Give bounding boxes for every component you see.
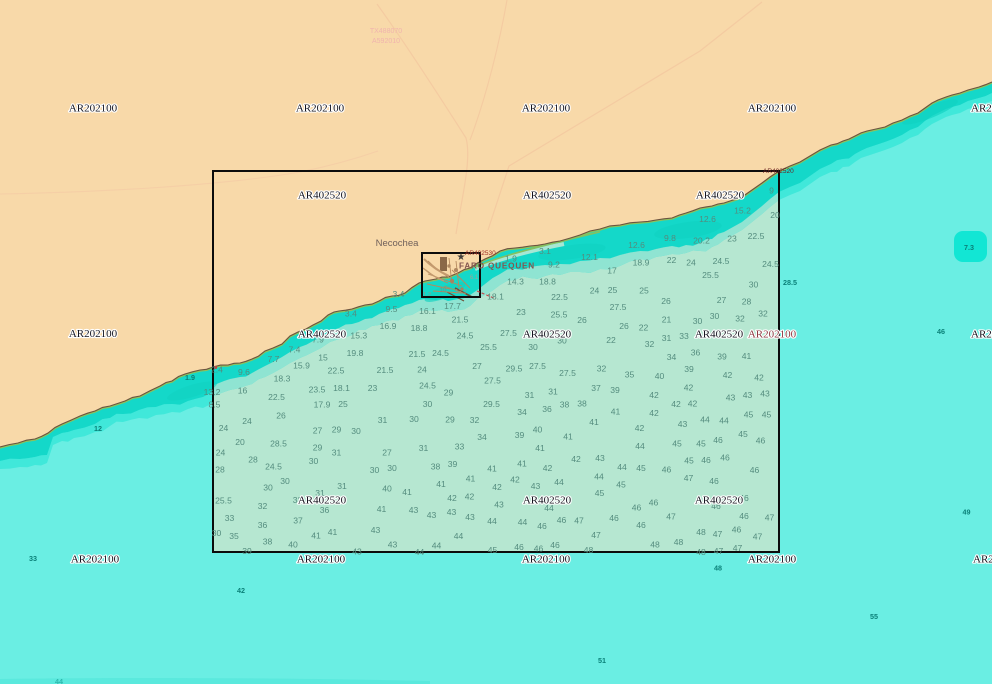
svg-text:42: 42 (684, 383, 694, 393)
svg-text:46: 46 (756, 436, 766, 446)
svg-text:35: 35 (625, 370, 635, 380)
svg-text:AR202100: AR202100 (522, 103, 571, 115)
svg-text:AR202100: AR202100 (522, 554, 571, 566)
svg-text:22.5: 22.5 (328, 366, 345, 376)
svg-text:24: 24 (242, 416, 252, 426)
svg-text:18.8: 18.8 (539, 277, 556, 287)
svg-text:44: 44 (635, 441, 645, 451)
svg-text:41: 41 (466, 474, 476, 484)
svg-text:48: 48 (584, 545, 594, 555)
svg-text:6.1: 6.1 (470, 275, 479, 281)
svg-text:38: 38 (560, 400, 570, 410)
svg-text:22: 22 (639, 323, 649, 333)
svg-text:AR402520: AR402520 (695, 495, 744, 507)
svg-text:18.1: 18.1 (487, 292, 504, 302)
svg-text:32: 32 (735, 314, 745, 324)
svg-text:41: 41 (377, 504, 387, 514)
svg-text:14.3: 14.3 (507, 277, 524, 287)
svg-text:30: 30 (351, 426, 361, 436)
svg-text:30: 30 (693, 316, 703, 326)
svg-text:17.7: 17.7 (444, 301, 461, 311)
svg-text:46: 46 (732, 525, 742, 535)
svg-text:AR202100: AR202100 (297, 554, 346, 566)
svg-text:9.8: 9.8 (664, 233, 676, 243)
svg-text:7.4: 7.4 (289, 345, 301, 355)
svg-text:37: 37 (293, 516, 303, 526)
svg-text:28.5: 28.5 (783, 278, 797, 287)
svg-text:30: 30 (423, 399, 433, 409)
svg-text:44: 44 (415, 547, 425, 557)
svg-text:25.5: 25.5 (551, 310, 568, 320)
svg-text:31: 31 (337, 481, 347, 491)
svg-text:20: 20 (235, 437, 245, 447)
svg-text:24: 24 (417, 365, 427, 375)
svg-text:30: 30 (280, 476, 290, 486)
svg-text:24.5: 24.5 (457, 331, 474, 341)
svg-text:45: 45 (744, 410, 754, 420)
svg-text:47: 47 (574, 516, 584, 526)
svg-text:8.5: 8.5 (209, 400, 221, 410)
svg-text:12.1: 12.1 (581, 252, 598, 262)
svg-text:47: 47 (753, 532, 763, 542)
svg-text:43: 43 (494, 500, 504, 510)
svg-text:42: 42 (649, 408, 659, 418)
svg-text:47: 47 (765, 513, 775, 523)
svg-text:30: 30 (212, 528, 222, 538)
svg-text:26: 26 (577, 315, 587, 325)
svg-text:47: 47 (733, 543, 743, 553)
svg-text:46: 46 (537, 521, 547, 531)
svg-text:25.5: 25.5 (215, 496, 232, 506)
svg-text:36: 36 (691, 348, 701, 358)
svg-text:12: 12 (94, 424, 102, 433)
svg-text:A592010: A592010 (372, 38, 400, 45)
svg-text:21: 21 (662, 315, 672, 325)
svg-text:43: 43 (388, 540, 398, 550)
svg-text:15.9: 15.9 (293, 361, 310, 371)
svg-text:46: 46 (713, 435, 723, 445)
svg-text:43: 43 (726, 393, 736, 403)
svg-text:46: 46 (701, 455, 711, 465)
svg-text:13.7: 13.7 (455, 290, 467, 296)
svg-text:46: 46 (662, 465, 672, 475)
svg-text:47: 47 (591, 530, 601, 540)
svg-text:36: 36 (542, 404, 552, 414)
svg-text:48: 48 (674, 537, 684, 547)
svg-text:31: 31 (525, 390, 535, 400)
svg-text:TX488070: TX488070 (370, 28, 402, 35)
svg-text:AR402520: AR402520 (523, 190, 572, 202)
svg-text:30: 30 (749, 280, 759, 290)
svg-text:24: 24 (216, 448, 226, 458)
svg-text:43: 43 (743, 390, 753, 400)
svg-text:39: 39 (515, 430, 525, 440)
svg-text:41: 41 (487, 464, 497, 474)
svg-text:AR202100: AR202100 (296, 103, 345, 115)
svg-text:41: 41 (563, 432, 573, 442)
svg-text:36: 36 (258, 520, 268, 530)
svg-text:25: 25 (639, 286, 649, 296)
svg-text:45: 45 (636, 463, 646, 473)
svg-text:AR402520: AR402520 (763, 168, 794, 175)
svg-text:24.5: 24.5 (265, 462, 282, 472)
svg-text:39: 39 (448, 459, 458, 469)
svg-text:23.5: 23.5 (309, 385, 326, 395)
svg-text:49: 49 (963, 508, 971, 517)
svg-text:39: 39 (717, 352, 727, 362)
svg-text:44: 44 (432, 541, 442, 551)
svg-text:23: 23 (516, 307, 526, 317)
svg-text:41: 41 (402, 487, 412, 497)
svg-text:AR402520: AR402520 (523, 329, 572, 341)
svg-text:44: 44 (700, 415, 710, 425)
svg-text:43: 43 (447, 507, 457, 517)
svg-text:43: 43 (465, 512, 475, 522)
svg-text:25: 25 (338, 399, 348, 409)
svg-text:21.5: 21.5 (409, 349, 426, 359)
svg-text:30: 30 (370, 465, 380, 475)
svg-text:43: 43 (352, 547, 362, 557)
svg-text:44: 44 (719, 416, 729, 426)
svg-text:18.3: 18.3 (274, 374, 291, 384)
svg-text:42: 42 (543, 463, 553, 473)
svg-text:AR402520: AR402520 (298, 329, 347, 341)
svg-text:40: 40 (533, 425, 543, 435)
svg-text:46: 46 (739, 511, 749, 521)
svg-text:48: 48 (714, 564, 722, 573)
svg-text:41: 41 (328, 527, 338, 537)
svg-text:AR202100: AR202100 (973, 554, 992, 566)
svg-text:41: 41 (311, 531, 321, 541)
svg-text:47: 47 (714, 546, 724, 556)
svg-text:43: 43 (371, 525, 381, 535)
svg-text:3.4: 3.4 (393, 289, 405, 299)
svg-text:42: 42 (635, 423, 645, 433)
svg-text:12.6: 12.6 (628, 240, 645, 250)
svg-text:46: 46 (550, 540, 560, 550)
svg-text:9.2: 9.2 (548, 260, 560, 270)
svg-text:41: 41 (611, 407, 621, 417)
svg-text:22.5: 22.5 (551, 292, 568, 302)
svg-text:41: 41 (436, 479, 446, 489)
svg-text:45: 45 (696, 439, 706, 449)
svg-text:AR402520: AR402520 (695, 329, 744, 341)
svg-text:39: 39 (242, 546, 252, 556)
svg-text:44: 44 (554, 477, 564, 487)
svg-text:43: 43 (427, 510, 437, 520)
svg-text:45: 45 (595, 488, 605, 498)
svg-text:45: 45 (616, 480, 626, 490)
svg-text:44: 44 (594, 472, 604, 482)
svg-text:28: 28 (215, 465, 225, 475)
svg-text:3.1: 3.1 (539, 246, 551, 256)
svg-text:30: 30 (710, 311, 720, 321)
svg-text:AR202100: AR202100 (748, 103, 797, 115)
svg-text:42: 42 (492, 482, 502, 492)
svg-text:28.5: 28.5 (270, 439, 287, 449)
svg-text:32: 32 (645, 339, 655, 349)
svg-text:46: 46 (720, 453, 730, 463)
svg-text:24: 24 (686, 258, 696, 268)
svg-text:23: 23 (368, 383, 378, 393)
svg-text:41: 41 (517, 459, 527, 469)
svg-text:AR202100: AR202100 (71, 554, 120, 566)
svg-text:9.5: 9.5 (386, 304, 398, 314)
svg-text:46: 46 (534, 544, 544, 554)
svg-text:45: 45 (488, 545, 498, 555)
svg-text:31: 31 (378, 415, 388, 425)
svg-text:20: 20 (770, 210, 780, 220)
svg-text:43: 43 (678, 419, 688, 429)
svg-text:45: 45 (672, 439, 682, 449)
svg-text:42: 42 (754, 373, 764, 383)
svg-text:AR202100: AR202100 (748, 329, 797, 341)
svg-text:33: 33 (679, 331, 689, 341)
svg-text:48: 48 (696, 547, 706, 557)
svg-text:48: 48 (696, 527, 706, 537)
svg-text:43: 43 (760, 389, 770, 399)
svg-text:25.5: 25.5 (702, 270, 719, 280)
svg-text:2.4: 2.4 (211, 365, 223, 375)
svg-text:44: 44 (454, 531, 464, 541)
svg-text:9: 9 (769, 186, 774, 196)
svg-text:18.1: 18.1 (333, 383, 350, 393)
svg-text:42: 42 (237, 586, 245, 595)
svg-text:27.5: 27.5 (559, 368, 576, 378)
svg-text:18.8: 18.8 (411, 323, 428, 333)
svg-text:FARO QUEQUEN: FARO QUEQUEN (459, 262, 535, 271)
svg-text:45: 45 (738, 429, 748, 439)
svg-text:16.1: 16.1 (419, 306, 436, 316)
svg-text:17.9: 17.9 (314, 400, 331, 410)
svg-text:16.9: 16.9 (380, 321, 397, 331)
svg-text:27: 27 (472, 361, 482, 371)
svg-text:42: 42 (571, 454, 581, 464)
svg-text:47: 47 (713, 529, 723, 539)
svg-text:16: 16 (238, 386, 248, 396)
svg-text:27.5: 27.5 (500, 328, 517, 338)
svg-text:27.5: 27.5 (529, 361, 546, 371)
svg-text:1.9: 1.9 (185, 373, 195, 382)
svg-text:33: 33 (29, 554, 37, 563)
svg-text:46: 46 (649, 498, 659, 508)
svg-text:AR402520: AR402520 (298, 190, 347, 202)
svg-text:40: 40 (382, 484, 392, 494)
svg-text:24.5: 24.5 (432, 348, 449, 358)
svg-text:42: 42 (447, 493, 457, 503)
svg-text:47: 47 (666, 512, 676, 522)
svg-text:29.5: 29.5 (506, 364, 523, 374)
svg-text:15.2: 15.2 (734, 206, 751, 216)
svg-text:24: 24 (590, 286, 600, 296)
svg-text:46: 46 (636, 520, 646, 530)
svg-text:39: 39 (684, 364, 694, 374)
svg-text:AR202100: AR202100 (69, 103, 118, 115)
svg-text:15: 15 (318, 353, 328, 363)
svg-text:9.6: 9.6 (238, 367, 250, 377)
svg-text:22: 22 (606, 335, 616, 345)
svg-text:51: 51 (598, 656, 606, 665)
svg-text:26: 26 (619, 321, 629, 331)
svg-text:27: 27 (717, 295, 727, 305)
svg-text:43: 43 (595, 453, 605, 463)
svg-text:27.5: 27.5 (610, 302, 627, 312)
svg-text:28: 28 (742, 297, 752, 307)
svg-text:46: 46 (750, 465, 760, 475)
svg-text:29: 29 (332, 425, 342, 435)
svg-text:10: 10 (440, 288, 447, 294)
svg-text:40: 40 (288, 540, 298, 550)
svg-text:31: 31 (548, 387, 558, 397)
svg-text:31: 31 (662, 333, 672, 343)
svg-text:55: 55 (870, 612, 878, 621)
svg-text:38: 38 (431, 462, 441, 472)
svg-text:26: 26 (661, 296, 671, 306)
svg-text:30: 30 (409, 414, 419, 424)
svg-text:46: 46 (709, 476, 719, 486)
svg-text:26: 26 (276, 411, 286, 421)
svg-text:32: 32 (258, 501, 268, 511)
svg-text:32: 32 (597, 364, 607, 374)
svg-text:43: 43 (409, 505, 419, 515)
svg-text:7.3: 7.3 (964, 243, 974, 252)
svg-text:24: 24 (219, 423, 229, 433)
svg-text:34: 34 (517, 407, 527, 417)
svg-text:27: 27 (313, 426, 323, 436)
svg-text:27.5: 27.5 (484, 376, 501, 386)
svg-text:29: 29 (444, 388, 454, 398)
svg-text:AR402520: AR402520 (523, 495, 572, 507)
svg-text:22.5: 22.5 (268, 392, 285, 402)
svg-text:42: 42 (671, 399, 681, 409)
svg-text:30: 30 (309, 456, 319, 466)
svg-text:35: 35 (229, 531, 239, 541)
svg-text:29: 29 (445, 415, 455, 425)
svg-text:46: 46 (514, 542, 524, 552)
svg-text:41: 41 (589, 417, 599, 427)
svg-text:AR402520: AR402520 (298, 495, 347, 507)
svg-text:39: 39 (610, 385, 620, 395)
svg-text:17: 17 (607, 266, 617, 276)
svg-text:42: 42 (649, 390, 659, 400)
svg-text:15.3: 15.3 (350, 331, 367, 341)
svg-text:20.2: 20.2 (693, 236, 710, 246)
svg-text:24.5: 24.5 (762, 259, 779, 269)
svg-text:42: 42 (510, 475, 520, 485)
svg-text:41: 41 (742, 351, 752, 361)
svg-text:36: 36 (320, 505, 330, 515)
svg-text:24.5: 24.5 (713, 256, 730, 266)
svg-text:46: 46 (557, 515, 567, 525)
svg-text:AR202100: AR202100 (971, 103, 992, 115)
svg-text:32: 32 (470, 415, 480, 425)
svg-text:44: 44 (487, 516, 497, 526)
svg-text:1.9: 1.9 (505, 254, 517, 264)
svg-text:42: 42 (723, 370, 733, 380)
svg-text:42: 42 (465, 492, 475, 502)
svg-text:25: 25 (608, 285, 618, 295)
svg-text:28: 28 (248, 455, 258, 465)
svg-text:38: 38 (263, 537, 273, 547)
svg-text:46: 46 (609, 513, 619, 523)
svg-text:22: 22 (667, 255, 677, 265)
svg-text:34: 34 (667, 352, 677, 362)
svg-text:3.4: 3.4 (345, 309, 357, 319)
svg-text:30: 30 (263, 483, 273, 493)
svg-text:12.6: 12.6 (699, 214, 716, 224)
svg-text:34: 34 (477, 432, 487, 442)
svg-text:AR202100: AR202100 (748, 554, 797, 566)
svg-text:AR402530: AR402530 (465, 250, 496, 257)
svg-text:30: 30 (528, 342, 538, 352)
svg-text:AR402520: AR402520 (696, 190, 745, 202)
svg-text:33: 33 (455, 442, 465, 452)
svg-text:44: 44 (518, 517, 528, 527)
svg-text:42: 42 (688, 399, 698, 409)
svg-text:46: 46 (937, 327, 945, 336)
svg-text:48: 48 (650, 540, 660, 550)
svg-text:40: 40 (655, 371, 665, 381)
svg-text:AR202100: AR202100 (69, 328, 118, 340)
svg-text:44: 44 (617, 462, 627, 472)
svg-text:21.5: 21.5 (452, 315, 469, 325)
svg-text:29: 29 (313, 443, 323, 453)
svg-text:31: 31 (419, 443, 429, 453)
svg-text:21.5: 21.5 (377, 365, 394, 375)
svg-text:19.8: 19.8 (347, 348, 364, 358)
svg-text:Necochea: Necochea (376, 238, 419, 249)
svg-text:46: 46 (632, 503, 642, 513)
svg-text:27: 27 (382, 448, 392, 458)
svg-text:22.5: 22.5 (748, 231, 765, 241)
svg-text:43: 43 (531, 481, 541, 491)
svg-text:47: 47 (684, 473, 694, 483)
svg-text:31: 31 (332, 448, 342, 458)
svg-text:18.9: 18.9 (633, 258, 650, 268)
svg-text:45: 45 (762, 410, 772, 420)
svg-text:29.5: 29.5 (483, 399, 500, 409)
svg-text:AR202100: AR202100 (971, 329, 992, 341)
svg-text:38: 38 (577, 399, 587, 409)
svg-text:7.7: 7.7 (268, 354, 280, 364)
svg-text:23: 23 (727, 234, 737, 244)
svg-text:30: 30 (387, 463, 397, 473)
svg-text:37: 37 (591, 383, 601, 393)
svg-text:32: 32 (758, 309, 768, 319)
svg-text:25.5: 25.5 (480, 342, 497, 352)
svg-text:13.2: 13.2 (204, 387, 221, 397)
svg-text:33: 33 (225, 513, 235, 523)
svg-text:41: 41 (535, 443, 545, 453)
svg-text:45: 45 (684, 456, 694, 466)
svg-text:24.5: 24.5 (419, 381, 436, 391)
